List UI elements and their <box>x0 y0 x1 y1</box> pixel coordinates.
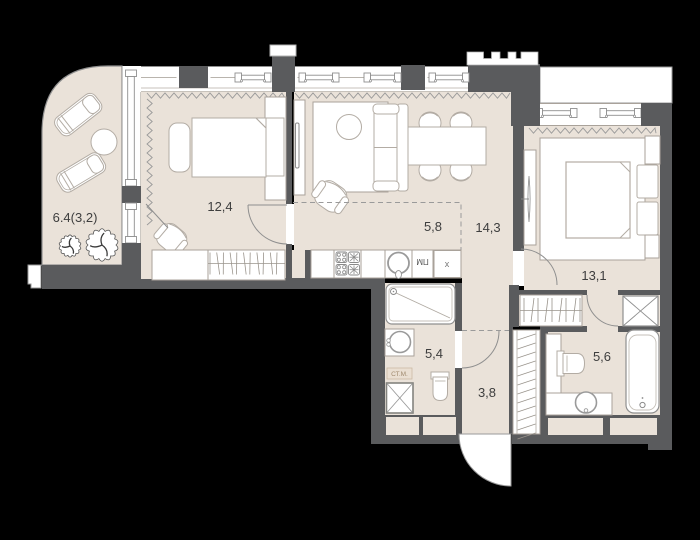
svg-text:ПМ: ПМ <box>416 257 429 266</box>
svg-text:5,6: 5,6 <box>593 349 611 364</box>
svg-text:5,8: 5,8 <box>424 219 442 234</box>
svg-text:13,1: 13,1 <box>581 268 606 283</box>
svg-text:6.4(3,2): 6.4(3,2) <box>53 210 98 225</box>
svg-text:x: x <box>445 259 450 269</box>
svg-text:СТ.М.: СТ.М. <box>391 371 408 378</box>
svg-text:5,4: 5,4 <box>425 346 443 361</box>
svg-text:3,8: 3,8 <box>478 385 496 400</box>
svg-text:12,4: 12,4 <box>207 199 232 214</box>
svg-text:14,3: 14,3 <box>475 220 500 235</box>
